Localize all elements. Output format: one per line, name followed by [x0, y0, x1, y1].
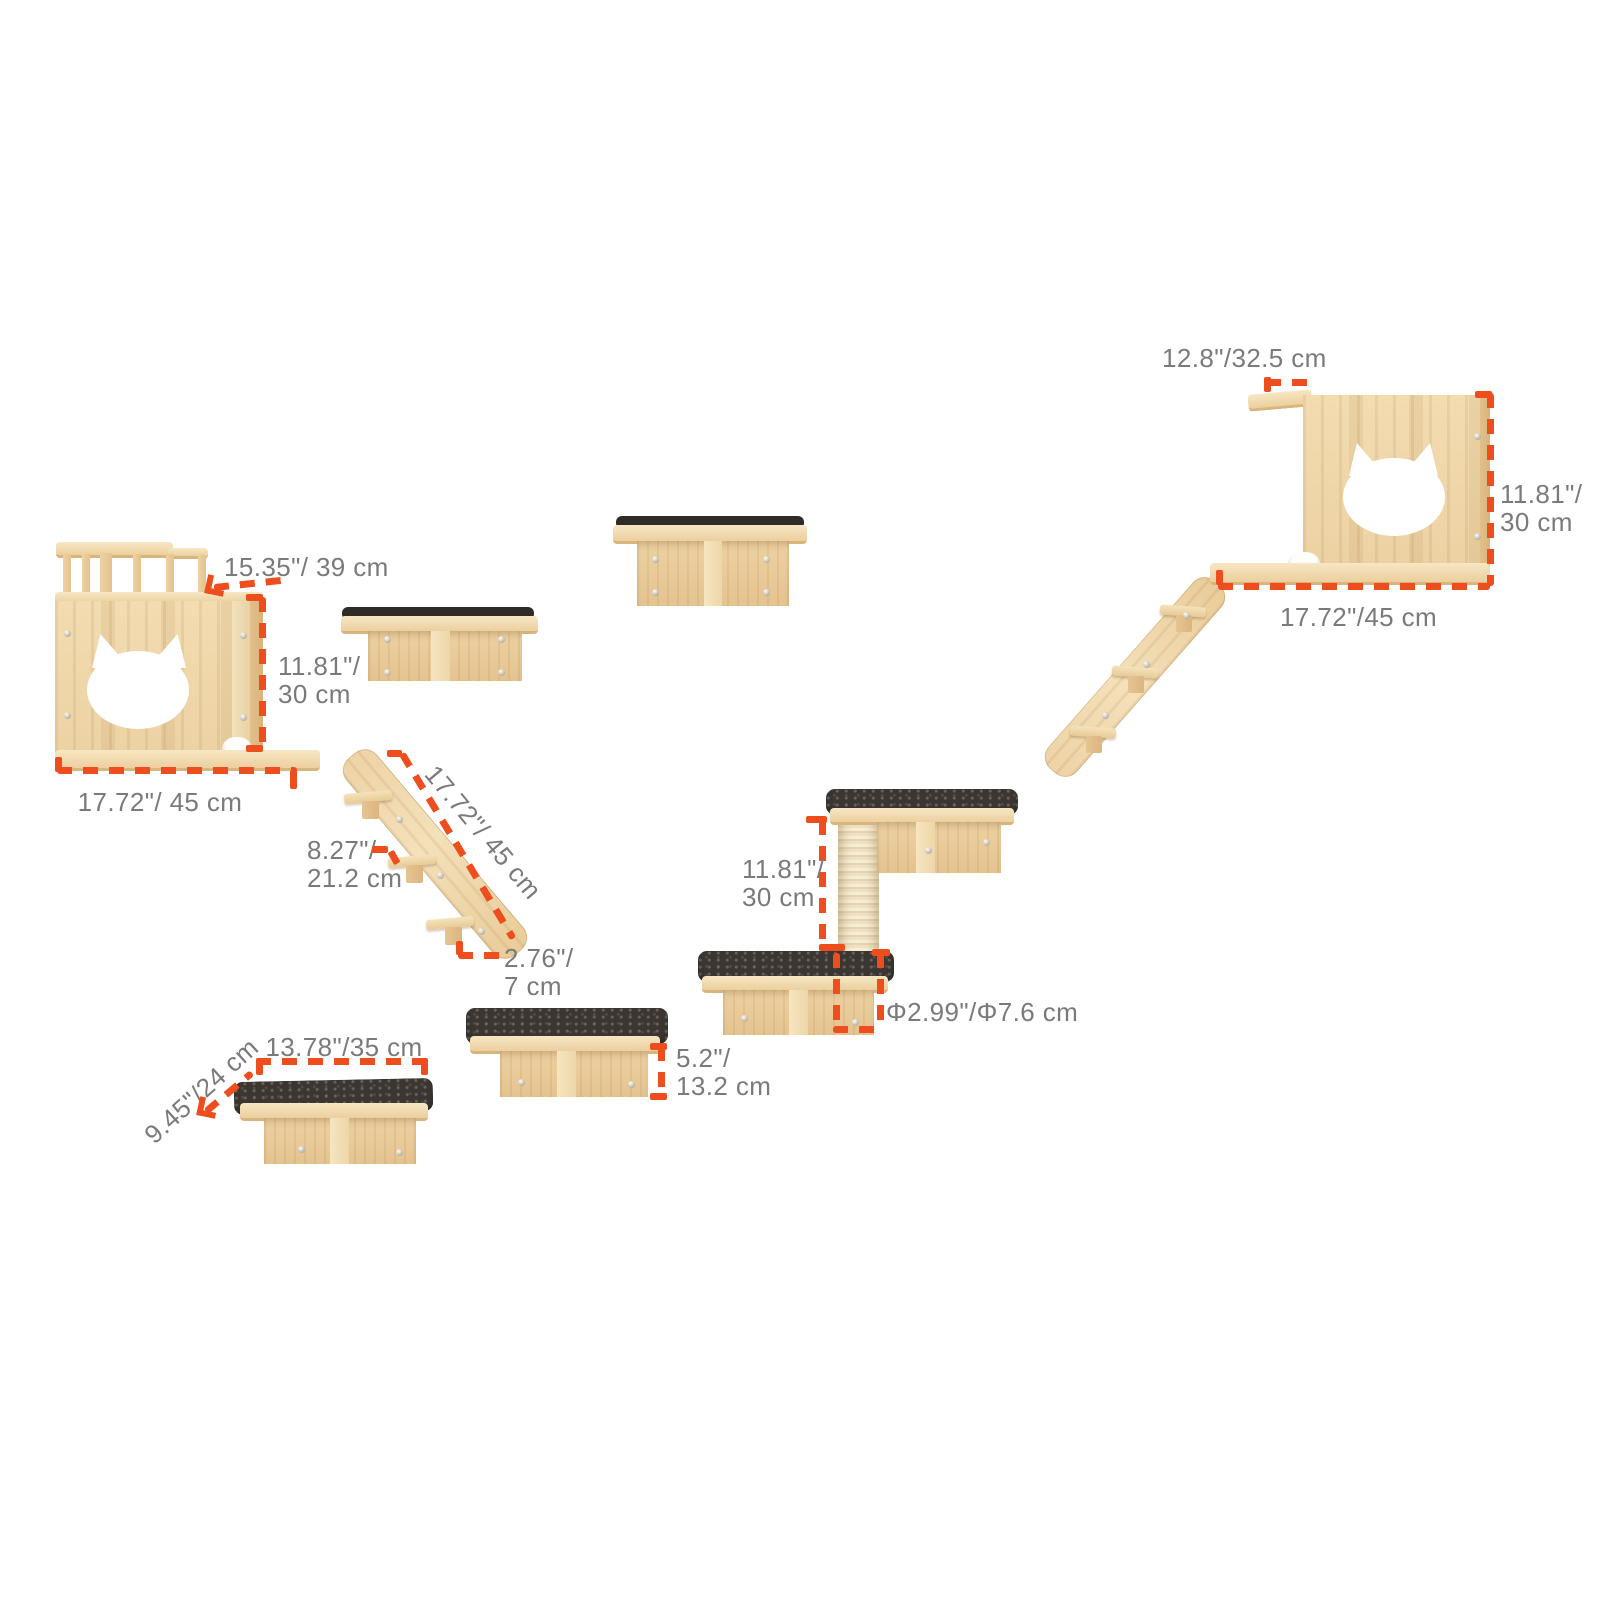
cat-hole — [87, 651, 189, 729]
screw — [437, 872, 444, 879]
dim-label-left-house-top: 15.35"/ 39 cm — [224, 553, 389, 581]
step-support — [330, 1118, 349, 1164]
house-bottom-shelf — [1210, 563, 1490, 585]
screw — [384, 636, 391, 643]
dim-line — [1487, 393, 1494, 586]
dim-tick — [372, 846, 388, 853]
shelf-support — [704, 541, 722, 606]
screw — [64, 630, 71, 637]
screw — [983, 839, 990, 846]
dim-tick — [55, 757, 62, 772]
screw — [628, 1081, 635, 1088]
screw — [240, 714, 247, 721]
dim-line — [259, 597, 266, 749]
dim-label-right-house-width: 17.72"/45 cm — [1280, 603, 1432, 631]
screw — [763, 556, 770, 563]
screw — [1102, 712, 1109, 719]
screw — [396, 1149, 403, 1156]
dim-line — [877, 953, 884, 1031]
dim-line — [1218, 583, 1490, 590]
screw — [1474, 533, 1481, 540]
dim-label-bottom-step-width: 13.78"/35 cm — [258, 1033, 430, 1061]
screw — [478, 928, 485, 935]
screw — [240, 632, 247, 639]
dim-line — [833, 953, 840, 1031]
upper-step-bracket — [877, 822, 1001, 873]
ladder-step-bracket — [362, 801, 379, 819]
dim-label-right-house-top: 12.8"/32.5 cm — [1162, 344, 1327, 372]
dim-label-post-diameter: Φ2.99"/Φ7.6 cm — [886, 998, 1078, 1026]
dim-arrow — [196, 1096, 219, 1119]
dim-line — [833, 1026, 884, 1033]
screw — [64, 712, 71, 719]
dim-label-left-house-width: 17.72"/ 45 cm — [75, 788, 245, 816]
screw — [652, 556, 659, 563]
screw — [298, 1146, 305, 1153]
screw — [498, 669, 505, 676]
dim-tick — [246, 594, 263, 601]
balcony-bar — [82, 554, 90, 594]
balcony-bar — [133, 554, 141, 594]
dim-tick — [819, 944, 845, 951]
shelf-support — [431, 631, 450, 681]
dim-label-step-unit-height: 11.81"/ 30 cm — [742, 855, 824, 911]
dim-tick — [421, 1058, 428, 1075]
screw — [741, 1015, 748, 1022]
dim-tick — [650, 1093, 667, 1100]
dim-line — [57, 767, 297, 774]
ladder-step-bracket — [1086, 736, 1102, 753]
balcony-bar — [63, 554, 71, 594]
balcony-top-rail — [56, 542, 173, 558]
dim-label-step-height: 5.2"/ 13.2 cm — [676, 1044, 771, 1100]
dim-label-left-house-height: 11.81"/ 30 cm — [278, 652, 360, 708]
dim-line — [658, 1046, 665, 1096]
ladder-step-bracket — [1128, 676, 1144, 693]
lower-step-support — [789, 990, 808, 1035]
screw — [518, 1079, 525, 1086]
dim-tick — [872, 949, 890, 956]
dim-label-right-house-height: 11.81"/ 30 cm — [1500, 480, 1582, 536]
dim-tick — [290, 770, 297, 789]
dim-tick — [1216, 570, 1223, 585]
dim-line — [1266, 379, 1318, 386]
screw — [652, 589, 659, 596]
balcony-bar — [100, 553, 112, 595]
screw — [925, 847, 932, 854]
screw — [384, 669, 391, 676]
step-support — [557, 1051, 576, 1097]
screw — [396, 816, 403, 823]
dim-label-ladder-step: 8.27"/ 21.2 cm — [307, 836, 402, 892]
screw — [763, 589, 770, 596]
balcony-bar — [166, 554, 174, 594]
screw — [1474, 433, 1481, 440]
dim-label-ladder-width: 2.76"/ 7 cm — [504, 944, 573, 1000]
cat-hole — [1343, 458, 1445, 536]
dim-line — [256, 1058, 428, 1065]
cat-wall-furniture-dimension-diagram: 15.35"/ 39 cm 11.81"/ 30 cm 17.72"/ 45 c… — [0, 0, 1600, 1600]
screw — [852, 1019, 859, 1026]
screw — [498, 636, 505, 643]
screw — [1143, 661, 1150, 668]
screw — [1183, 612, 1190, 619]
dim-tick — [246, 745, 263, 752]
dim-line — [458, 952, 508, 959]
ladder-step-bracket — [406, 865, 423, 883]
